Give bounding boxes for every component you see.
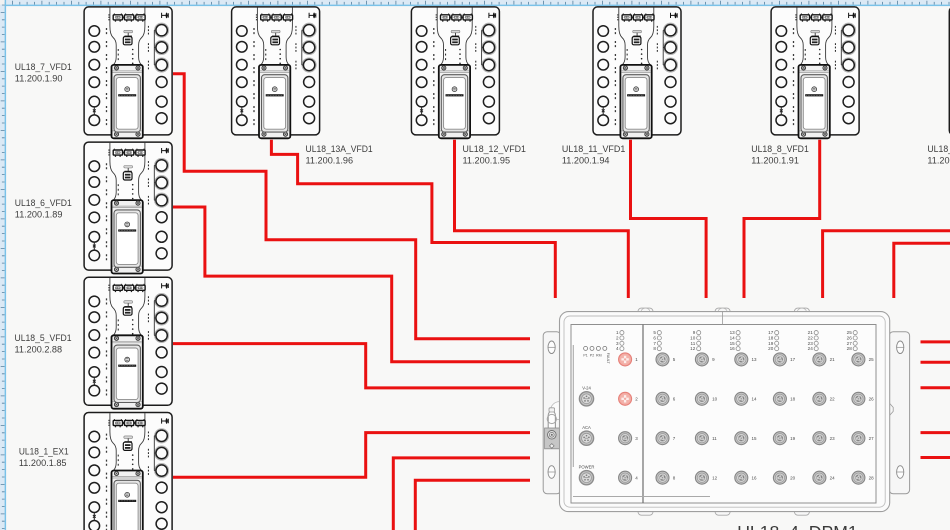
svg-text:25: 25	[869, 357, 875, 362]
svg-text:15: 15	[730, 341, 736, 346]
svg-text:24: 24	[808, 346, 814, 351]
svg-text:10: 10	[712, 397, 718, 402]
svg-text:16: 16	[730, 346, 736, 351]
svg-text:19: 19	[768, 341, 774, 346]
svg-text:21: 21	[830, 357, 836, 362]
svg-text:V-24: V-24	[582, 386, 591, 391]
svg-text:12: 12	[712, 476, 718, 481]
svg-text:27: 27	[847, 341, 853, 346]
svg-text:6: 6	[653, 335, 656, 340]
svg-text:UL18_13A_VFD1: UL18_13A_VFD1	[306, 144, 373, 155]
svg-text:25: 25	[847, 330, 853, 335]
svg-text:18: 18	[790, 397, 796, 402]
svg-text:21: 21	[808, 330, 814, 335]
svg-text:UL18_11_VFD1: UL18_11_VFD1	[562, 144, 625, 155]
svg-text:27: 27	[869, 436, 875, 441]
svg-text:17: 17	[790, 357, 796, 362]
svg-text:4: 4	[616, 346, 619, 351]
svg-text:RM: RM	[596, 353, 602, 357]
svg-text:2: 2	[616, 335, 619, 340]
svg-text:9: 9	[693, 330, 696, 335]
svg-text:POWER: POWER	[579, 464, 595, 469]
svg-text:UL18_7_VFD1: UL18_7_VFD1	[15, 62, 72, 73]
svg-text:15: 15	[752, 436, 758, 441]
svg-text:28: 28	[847, 346, 853, 351]
svg-text:11.200.1.94: 11.200.1.94	[562, 156, 610, 167]
svg-text:UL18_8_VFD1: UL18_8_VFD1	[751, 144, 809, 155]
svg-text:20: 20	[790, 476, 796, 481]
svg-text:13: 13	[730, 330, 736, 335]
svg-text:23: 23	[808, 341, 814, 346]
svg-text:11.200.1.89: 11.200.1.89	[15, 210, 63, 221]
svg-text:UL18_4_DPM1: UL18_4_DPM1	[737, 522, 858, 530]
svg-text:8: 8	[653, 346, 656, 351]
svg-text:11.200.1.85: 11.200.1.85	[19, 458, 67, 469]
svg-text:24: 24	[830, 476, 836, 481]
svg-text:10: 10	[690, 335, 696, 340]
svg-text:20: 20	[768, 346, 774, 351]
svg-text:11.200.1.91: 11.200.1.91	[751, 156, 799, 167]
svg-text:19: 19	[790, 436, 796, 441]
svg-text:5: 5	[653, 330, 656, 335]
svg-text:14: 14	[730, 335, 736, 340]
svg-text:11.200.1.92: 11.200.1.92	[927, 156, 950, 167]
svg-text:23: 23	[830, 436, 836, 441]
svg-text:1: 1	[616, 330, 619, 335]
svg-text:14: 14	[752, 397, 758, 402]
svg-text:UL18_12_VFD1: UL18_12_VFD1	[463, 144, 526, 155]
svg-text:11.200.1.90: 11.200.1.90	[15, 74, 63, 85]
svg-text:28: 28	[869, 476, 875, 481]
svg-text:22: 22	[808, 335, 814, 340]
svg-text:11.200.1.96: 11.200.1.96	[306, 156, 354, 167]
svg-text:UL18_6_VFD1: UL18_6_VFD1	[15, 198, 72, 209]
svg-text:FAULT: FAULT	[606, 353, 610, 365]
svg-text:P2: P2	[590, 353, 594, 357]
svg-text:17: 17	[768, 330, 774, 335]
svg-text:7: 7	[653, 341, 656, 346]
svg-text:16: 16	[752, 476, 758, 481]
svg-text:11.200.1.95: 11.200.1.95	[463, 156, 511, 167]
svg-text:22: 22	[830, 397, 836, 402]
svg-text:P1: P1	[583, 353, 587, 357]
svg-text:UL18_5_VFD1: UL18_5_VFD1	[15, 333, 72, 344]
svg-text:ACA: ACA	[582, 425, 591, 430]
svg-text:11: 11	[691, 341, 696, 346]
svg-text:UL18_9_VFD1: UL18_9_VFD1	[927, 144, 950, 155]
svg-text:UL18_1_EX1: UL18_1_EX1	[19, 446, 69, 457]
svg-text:11: 11	[712, 436, 717, 441]
svg-text:13: 13	[752, 357, 758, 362]
svg-text:18: 18	[768, 335, 774, 340]
svg-text:12: 12	[690, 346, 696, 351]
svg-text:26: 26	[869, 397, 875, 402]
svg-text:26: 26	[847, 335, 853, 340]
svg-text:11.200.2.88: 11.200.2.88	[15, 345, 63, 356]
svg-text:3: 3	[616, 341, 619, 346]
